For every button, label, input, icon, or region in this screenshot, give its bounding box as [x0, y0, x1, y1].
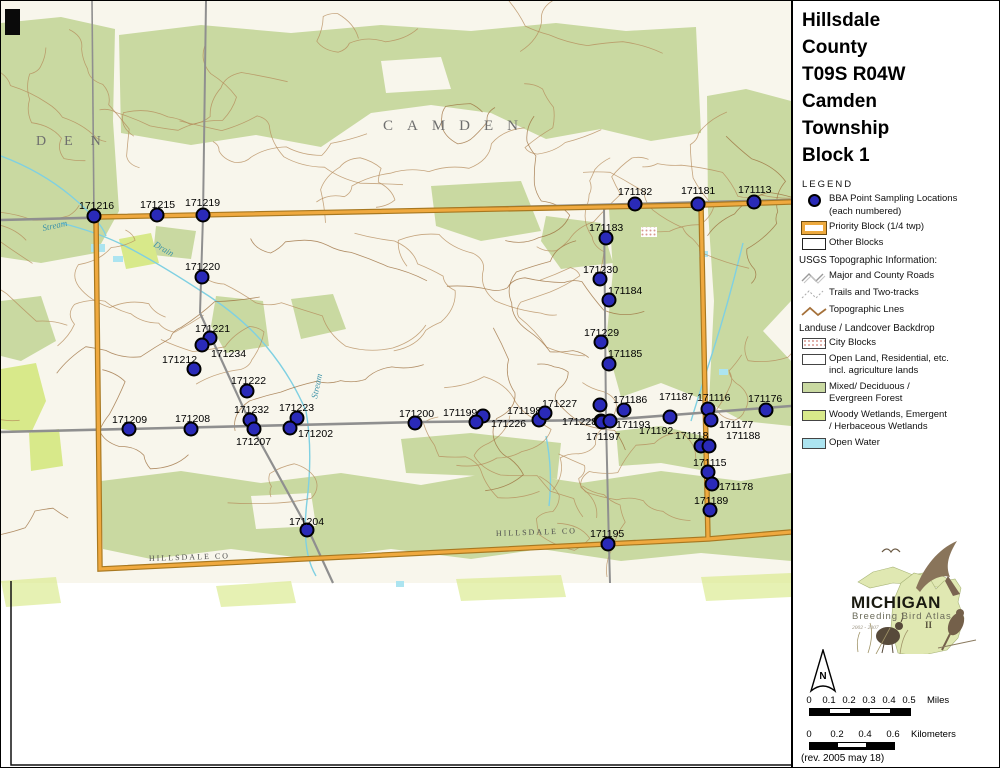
- title-line: Hillsdale: [802, 7, 905, 34]
- scale-bar: [799, 708, 999, 716]
- bba-point-label: 171222: [231, 375, 266, 387]
- scale-ticks: 0 0.2 0.4 0.6 Kilometers: [799, 729, 999, 741]
- title-line: County: [802, 34, 905, 61]
- logo-state-name: MICHIGAN: [851, 593, 941, 612]
- bba-point-171113: [748, 196, 761, 209]
- bba-point-label: 171234: [211, 348, 246, 360]
- bba-point-label: 171200: [399, 408, 434, 420]
- bba-point-label: 171198: [507, 405, 541, 417]
- bba-point-171234: [196, 339, 209, 352]
- bba-point-label: 171181: [681, 185, 715, 197]
- logo-subtitle: Breeding Bird Atlas: [852, 611, 952, 622]
- legend-label: Woody Wetlands, Emergent / Herbaceous We…: [829, 409, 999, 434]
- topo-line-symbol: [801, 305, 827, 318]
- bba-point-label: 171115: [693, 457, 727, 469]
- legend: BBA Point Sampling Locations (each numbe…: [799, 193, 999, 452]
- bba-point-171186: [594, 399, 607, 412]
- legend-label: Topographic Lnes: [829, 304, 999, 317]
- scale-bar-miles: 0 0.1 0.2 0.3 0.4 0.5 Miles: [799, 695, 999, 716]
- bba-point-label: 171204: [289, 516, 324, 528]
- title-line: Camden: [802, 88, 905, 115]
- bba-point-label: 171197: [586, 431, 620, 443]
- legend-label: BBA Point Sampling Locations (each numbe…: [829, 193, 999, 218]
- bba-point-label: 171176: [748, 393, 782, 405]
- bba-point-label: 171228: [562, 416, 597, 428]
- legend-label: Open Land, Residential, etc. incl. agric…: [829, 353, 999, 378]
- topographic-map: CAMDEN DEN HILLSDALE CO HILLSDALE CO Str…: [1, 1, 791, 768]
- bba-point-171202: [284, 422, 297, 435]
- legend-item-trails: Trails and Two-tracks: [799, 287, 999, 301]
- bba-point-171207: [248, 423, 261, 436]
- township-name-label: CAMDEN: [383, 118, 532, 134]
- bba-block-map-page: CAMDEN DEN HILLSDALE CO HILLSDALE CO Str…: [0, 0, 1000, 768]
- bba-point-symbol: [808, 194, 821, 207]
- bba-point-label: 171118: [675, 430, 709, 442]
- bba-point-171176: [760, 404, 773, 417]
- map-side-panel: Hillsdale County T09S R04W Camden Townsh…: [791, 1, 1000, 768]
- priority-block-symbol: [802, 222, 826, 234]
- flying-bird-icon: [882, 549, 900, 552]
- bba-point-label: 171189: [694, 495, 728, 507]
- bba-point-171177: [705, 414, 718, 427]
- scale-bar: [799, 742, 999, 750]
- legend-label: Open Water: [829, 437, 999, 450]
- bba-point-label: 171221: [195, 323, 230, 335]
- bba-point-label: 171188: [726, 430, 760, 442]
- map-title: Hillsdale County T09S R04W Camden Townsh…: [802, 7, 905, 169]
- legend-item-major-roads: Major and County Roads: [799, 270, 999, 284]
- legend-label: Other Blocks: [829, 237, 999, 250]
- legend-landuse-heading: Landuse / Landcover Backdrop: [799, 323, 999, 336]
- bba-point-label: 171184: [608, 285, 642, 297]
- legend-usgs-heading: USGS Topographic Information:: [799, 255, 999, 268]
- city-blocks-patch: [641, 227, 657, 237]
- legend-item-open-land: Open Land, Residential, etc. incl. agric…: [799, 353, 999, 378]
- revision-note: (rev. 2005 may 18): [801, 753, 884, 764]
- bba-point-label: 171227: [542, 398, 577, 410]
- bba-point-label: 171187: [659, 391, 693, 403]
- map-corner-mark: [5, 9, 20, 35]
- legend-item-city-blocks: City Blocks: [799, 337, 999, 350]
- bba-point-label: 171195: [590, 528, 624, 540]
- bba-point-label: 171220: [185, 261, 220, 273]
- legend-label: City Blocks: [829, 337, 999, 350]
- map-collar: [1, 583, 791, 768]
- bba-point-label: 171223: [279, 402, 314, 414]
- title-line: Block 1: [802, 142, 905, 169]
- bba-point-label: 171185: [608, 348, 642, 360]
- bba-point-label: 171212: [162, 354, 197, 366]
- michigan-bba-logo: MICHIGAN Breeding Bird Atlas 2002 - 2007…: [798, 536, 998, 654]
- bba-point-171181: [692, 198, 705, 211]
- bba-point-171193: [604, 415, 617, 428]
- legend-item-wetlands: Woody Wetlands, Emergent / Herbaceous We…: [799, 409, 999, 434]
- bba-point-171226: [470, 416, 483, 429]
- bba-point-label: 171216: [79, 200, 114, 212]
- bba-point-label: 171232: [234, 404, 269, 416]
- major-road-symbol: [801, 271, 827, 284]
- legend-heading: LEGEND: [802, 179, 853, 190]
- bba-point-171219: [197, 209, 210, 222]
- map-canvas: CAMDEN DEN HILLSDALE CO HILLSDALE CO Str…: [1, 1, 791, 768]
- logo-numeral: II: [925, 620, 933, 630]
- bba-point-171182: [629, 198, 642, 211]
- bba-point-171187: [664, 411, 677, 424]
- bba-point-label: 171182: [618, 186, 652, 198]
- scale-ticks: 0 0.1 0.2 0.3 0.4 0.5 Miles: [799, 695, 999, 707]
- legend-item-forest: Mixed/ Deciduous / Evergreen Forest: [799, 381, 999, 406]
- legend-item-bba-points: BBA Point Sampling Locations (each numbe…: [799, 193, 999, 218]
- legend-label: Mixed/ Deciduous / Evergreen Forest: [829, 381, 999, 406]
- bba-point-label: 171178: [719, 481, 753, 493]
- legend-label: Priority Block (1/4 twp): [829, 221, 999, 234]
- forest-symbol: [802, 382, 826, 393]
- north-label: N: [819, 671, 826, 682]
- trail-symbol: [801, 288, 827, 301]
- title-line: T09S R04W: [802, 61, 905, 88]
- bba-point-label: 171226: [491, 418, 526, 430]
- bba-point-label: 171183: [589, 222, 623, 234]
- bba-point-label: 171229: [584, 327, 619, 339]
- bba-point-171192: [618, 404, 631, 417]
- legend-item-other-blocks: Other Blocks: [799, 237, 999, 250]
- title-line: Township: [802, 115, 905, 142]
- wetland-symbol: [802, 410, 826, 421]
- bba-point-label: 171207: [236, 436, 271, 448]
- bba-point-label: 171192: [639, 425, 673, 437]
- bba-point-label: 171116: [697, 392, 731, 404]
- bba-point-label: 171208: [175, 413, 210, 425]
- bba-point-label: 171230: [583, 264, 618, 276]
- bba-point-label: 171202: [298, 428, 333, 440]
- adjacent-township-label: DEN: [36, 134, 119, 149]
- bba-point-label: 171209: [112, 414, 147, 426]
- open-water-symbol: [802, 438, 826, 449]
- bba-point-label: 171113: [738, 184, 772, 196]
- bba-point-label: 171215: [140, 199, 175, 211]
- legend-label: Trails and Two-tracks: [829, 287, 999, 300]
- legend-item-topo-lines: Topographic Lnes: [799, 304, 999, 318]
- scale-bar-kilometers: 0 0.2 0.4 0.6 Kilometers: [799, 729, 999, 750]
- open-land-symbol: [802, 354, 826, 365]
- clearing: [381, 57, 451, 93]
- legend-item-open-water: Open Water: [799, 437, 999, 450]
- bba-point-label: 171219: [185, 197, 220, 209]
- other-blocks-symbol: [802, 238, 826, 250]
- legend-label: Major and County Roads: [829, 270, 999, 283]
- legend-item-priority-block: Priority Block (1/4 twp): [799, 221, 999, 234]
- bba-point-171178: [706, 478, 719, 491]
- bba-point-label: 171186: [613, 394, 647, 406]
- bba-point-171188: [703, 440, 716, 453]
- logo-years: 2002 - 2007: [852, 625, 879, 631]
- north-arrow-icon: N: [805, 649, 841, 695]
- city-blocks-symbol: [802, 338, 826, 349]
